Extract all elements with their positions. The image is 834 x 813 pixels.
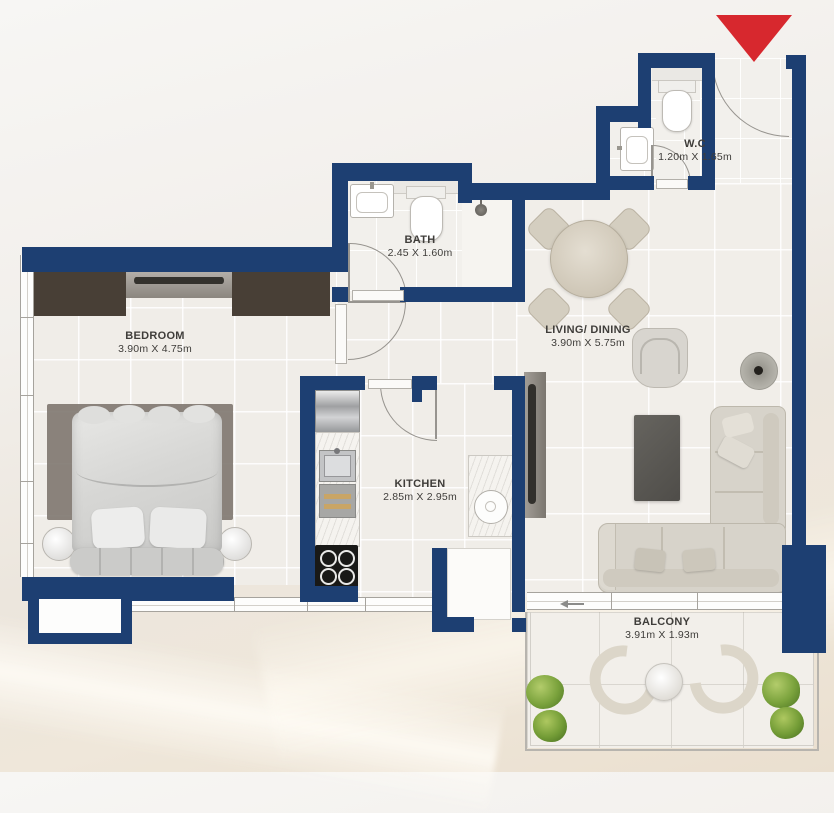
burner (320, 568, 337, 585)
kitchen-name: KITCHEN (340, 478, 500, 491)
sofa-seam (715, 491, 763, 493)
sofa-long-section (598, 523, 786, 593)
bedroom-tv-console (126, 272, 232, 298)
wall-bedroom-top (22, 247, 348, 272)
bedroom-name: BEDROOM (65, 330, 245, 343)
balcony-name: BALCONY (582, 616, 742, 629)
shower-head-icon (475, 204, 487, 216)
balcony-label: BALCONY 3.91m X 1.93m (582, 616, 742, 641)
bedroom-door-threshold (335, 304, 347, 364)
sofa-pillow (634, 547, 666, 572)
wall-wc-bottom-left (596, 176, 654, 190)
bed-fold-line (76, 455, 218, 487)
bed-pillow (149, 507, 207, 550)
burner (338, 568, 355, 585)
window-mullion (21, 317, 33, 318)
bed-pillow (91, 506, 146, 550)
plant-bush (762, 672, 800, 708)
entry-arrow-icon (716, 15, 792, 62)
cooktop (315, 545, 358, 588)
wall-kitchen-west (300, 376, 315, 602)
wc-name: W.C (630, 138, 760, 151)
bed-cushion (113, 405, 145, 423)
wall-wc-east (702, 53, 715, 190)
wall-kitchen-bottom (300, 586, 358, 602)
balcony-table (645, 663, 683, 701)
fridge (315, 390, 360, 436)
wall-divider-lower (512, 376, 525, 612)
wall-balcony-stub (512, 618, 526, 632)
window-mullion (611, 593, 612, 609)
sofa-pillow (682, 548, 716, 573)
wc-door-threshold (656, 179, 688, 189)
wall-living-east (792, 55, 806, 547)
bath-label: BATH 2.45 X 1.60m (350, 234, 490, 259)
wc-sink-faucet (617, 146, 622, 150)
bed-cushion (183, 405, 215, 423)
bedroom-dimensions: 3.90m X 4.75m (65, 343, 245, 355)
window-glass-line (27, 255, 28, 577)
slide-arrow (560, 600, 584, 608)
wall-bath-bottom (400, 287, 525, 302)
window-mullion (365, 598, 366, 611)
kitchen-door-threshold (368, 379, 412, 389)
wall-shower-top (458, 183, 610, 200)
window-mullion (697, 593, 698, 609)
living-dining-name: LIVING/ DINING (498, 324, 678, 337)
window-glass-line (112, 605, 432, 606)
wall-kitchen-jamb (412, 376, 437, 390)
wall-bedroom-bottom (22, 577, 234, 601)
utility-shaft (447, 548, 511, 620)
bath-sink (350, 184, 394, 218)
slide-arrow-head (560, 600, 568, 608)
living-dining-dimensions: 3.90m X 5.75m (498, 337, 678, 349)
bed-cushion (148, 406, 180, 424)
bath-sink-basin (356, 192, 388, 213)
bed-cushion (78, 406, 110, 424)
sofa-pillow (716, 434, 756, 469)
kitchen-label: KITCHEN 2.85m X 2.95m (340, 478, 500, 503)
dining-table (550, 220, 628, 298)
window-mullion (21, 543, 33, 544)
bed-headboard (70, 548, 224, 575)
bath-dimensions: 2.45 X 1.60m (350, 247, 490, 259)
plant-center (754, 366, 763, 375)
wall-kitchen-jamb-vertical (412, 390, 422, 402)
wardrobe-right (232, 272, 330, 316)
floor-plan: BEDROOM 3.90m X 4.75m BATH 2.45 X 1.60m … (0, 0, 834, 772)
plant-bush (533, 710, 567, 742)
wall-wc-bottom-right (688, 176, 715, 190)
bedroom-tv (134, 277, 224, 284)
living-tv (528, 384, 536, 504)
window-mullion (21, 395, 33, 396)
kitchen-faucet (334, 448, 340, 454)
bedroom-window (20, 255, 34, 577)
balcony-dimensions: 3.91m X 1.93m (582, 629, 742, 641)
sofa-seam (723, 527, 725, 569)
ac-ledge (28, 599, 132, 644)
wc-dimensions: 1.20m X 1.65m (630, 151, 760, 163)
wc-toilet (662, 90, 692, 132)
window-mullion (234, 598, 235, 611)
burner (338, 550, 355, 567)
kitchen-sink-basin (324, 455, 351, 477)
bath-sink-faucet (370, 182, 374, 189)
wall-bath-bottom-stub (332, 287, 348, 302)
wall-kitchen-top-right (494, 376, 525, 390)
wall-entry-step-notch (596, 106, 644, 122)
oven-rack (324, 504, 351, 509)
wc-label: W.C 1.20m X 1.65m (630, 138, 760, 163)
wall-shaft-foot (432, 617, 474, 632)
bath-name: BATH (350, 234, 490, 247)
wall-bath-top (332, 163, 472, 181)
coffee-table (634, 415, 680, 501)
wardrobe-left (30, 272, 126, 316)
sofa-pillow (721, 412, 755, 439)
sofa-back-cushion (763, 413, 779, 525)
sofa-chaise-section (710, 406, 786, 535)
plant-pot (740, 352, 778, 390)
bedroom-label: BEDROOM 3.90m X 4.75m (65, 330, 245, 355)
burner (320, 550, 337, 567)
wall-corner-block (782, 545, 826, 653)
window-mullion (21, 481, 33, 482)
bath-door-threshold (352, 290, 404, 301)
kitchen-dimensions: 2.85m X 2.95m (340, 491, 500, 503)
living-dining-label: LIVING/ DINING 3.90m X 5.75m (498, 324, 678, 349)
